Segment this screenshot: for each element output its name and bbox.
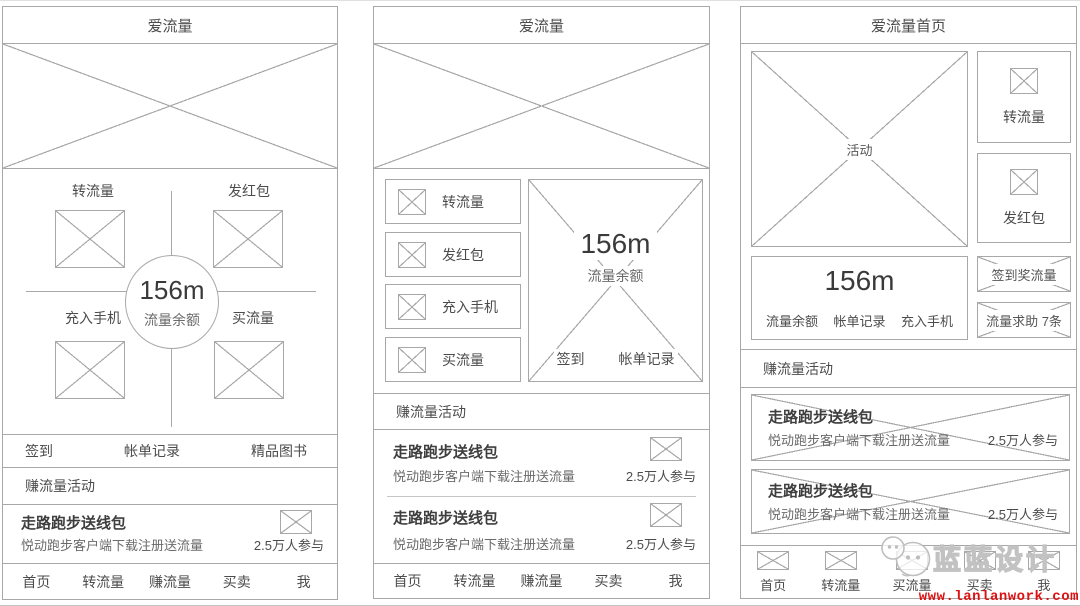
nav-item-home[interactable]: 首页 (374, 571, 441, 591)
signin-reward-button[interactable]: 签到奖流量 (977, 256, 1071, 292)
nav-label: 首页 (760, 575, 786, 594)
watermark-brand-text: 蓝蓝设计 (933, 538, 1057, 578)
screen1-page-title: 爱流量 (147, 15, 192, 36)
balance-circle: 156m 流量余额 (125, 255, 219, 349)
wireframe-screen-home-v1: 爱流量 转流量 发红包 充入手机 买流量 156m 流量余额 签到 帐单记录 精… (2, 6, 338, 600)
nav-item-trade[interactable]: 买卖 (203, 572, 270, 592)
action-label-transfer: 转流量 (33, 181, 153, 201)
menu-label: 充入手机 (442, 297, 498, 317)
screen2-menu-area: 转流量 发红包 充入手机 买流量 156m 流量余额 签到 (374, 169, 709, 393)
menu-image-placeholder-icon (398, 242, 426, 268)
screen2-bottom-nav: 首页 转流量 赚流量 买卖 我 (374, 564, 709, 598)
link-signin[interactable]: 签到 (554, 349, 588, 369)
promo-subtitle: 悦动跑步客户端下载注册送流量 (768, 504, 950, 523)
link-balance[interactable]: 流量余额 (766, 311, 818, 330)
screen2-title-bar: 爱流量 (374, 7, 709, 44)
balance-links-row: 流量余额 帐单记录 充入手机 (752, 311, 967, 330)
menu-image-placeholder-icon (398, 347, 426, 373)
nav-item-earn[interactable]: 赚流量 (137, 572, 204, 592)
balance-label: 流量余额 (584, 266, 648, 286)
menu-item-buydata[interactable]: 买流量 (385, 337, 521, 382)
promo-subtitle: 悦动跑步客户端下载注册送流量 (393, 534, 575, 553)
promo-participants: 2.5万人参与 (988, 430, 1058, 449)
promo-participants: 2.5万人参与 (254, 535, 324, 554)
wireframe-screen-home-v2: 爱流量 转流量 发红包 充入手机 买流量 156m (373, 6, 710, 599)
topup-image-placeholder-icon[interactable] (55, 341, 125, 399)
side-action-redpacket[interactable]: 发红包 (977, 153, 1071, 243)
link-billing[interactable]: 帐单记录 (833, 311, 885, 330)
promo-card[interactable]: 走路跑步送线包 悦动跑步客户端下载注册送流量 2.5万人参与 (374, 497, 709, 563)
balance-card: 156m 流量余额 帐单记录 充入手机 (751, 256, 968, 340)
wireframe-screen-home-v3: 爱流量首页 活动 转流量 发红包 156m 流量余额 帐单记录 充入手机 (740, 6, 1077, 599)
promo-image-placeholder-icon (650, 503, 682, 527)
action-label-redpacket: 发红包 (189, 181, 309, 201)
balance-readout: 156m 流量余额 (529, 228, 702, 286)
promo-subtitle: 悦动跑步客户端下载注册送流量 (393, 466, 575, 485)
promo-subtitle: 悦动跑步客户端下载注册送流量 (768, 430, 950, 449)
quick-link-signin[interactable]: 签到 (25, 441, 53, 461)
promo-subtitle: 悦动跑步客户端下载注册送流量 (21, 535, 203, 554)
menu-image-placeholder-icon (398, 189, 426, 215)
wireframe-sheet: 爱流量 转流量 发红包 充入手机 买流量 156m 流量余额 签到 帐单记录 精… (0, 0, 1080, 606)
promo-participants: 2.5万人参与 (626, 534, 696, 553)
quick-link-billing[interactable]: 帐单记录 (124, 441, 180, 461)
section-title: 赚流量活动 (763, 359, 833, 379)
screen2-page-title: 爱流量 (519, 15, 564, 36)
promo-image-placeholder-icon (280, 510, 312, 534)
nav-image-placeholder-icon (825, 551, 857, 570)
promo-title: 走路跑步送线包 (768, 406, 873, 427)
promo-card[interactable]: 走路跑步送线包 悦动跑步客户端下载注册送流量 2.5万人参与 (751, 469, 1070, 534)
promo-title: 走路跑步送线包 (393, 507, 498, 528)
screen1-section-header: 赚流量活动 (3, 468, 337, 505)
promo-image-placeholder-icon (650, 437, 682, 461)
nav-item-trade[interactable]: 买卖 (575, 571, 642, 591)
menu-label: 买流量 (442, 350, 484, 370)
data-help-button[interactable]: 流量求助 7条 (977, 302, 1071, 338)
side-action-label: 发红包 (1003, 208, 1045, 228)
promo-card[interactable]: 走路跑步送线包 悦动跑步客户端下载注册送流量 2.5万人参与 (751, 394, 1070, 461)
link-topup[interactable]: 充入手机 (901, 311, 953, 330)
nav-image-placeholder-icon (757, 551, 789, 570)
nav-item-me[interactable]: 我 (642, 571, 709, 591)
data-help-label: 流量求助 7条 (982, 310, 1066, 331)
screen3-title-bar: 爱流量首页 (741, 7, 1076, 44)
lanlan-bubbles-logo-icon (880, 535, 932, 579)
nav-label: 转流量 (821, 575, 860, 594)
balance-panel-placeholder: 156m 流量余额 签到 帐单记录 (528, 179, 703, 382)
nav-item-home[interactable]: 首页 (757, 551, 789, 594)
action-image-placeholder-icon (1010, 169, 1038, 195)
nav-item-me[interactable]: 我 (270, 572, 337, 592)
screen2-promo-list: 走路跑步送线包 悦动跑步客户端下载注册送流量 2.5万人参与 走路跑步送线包 悦… (374, 430, 709, 564)
nav-item-earn[interactable]: 赚流量 (508, 571, 575, 591)
screen1-action-grid: 转流量 发红包 充入手机 买流量 156m 流量余额 (3, 169, 337, 435)
screen3-content-area: 活动 转流量 发红包 156m 流量余额 帐单记录 充入手机 签到奖流量 (741, 44, 1076, 349)
menu-image-placeholder-icon (398, 294, 426, 320)
promo-participants: 2.5万人参与 (626, 466, 696, 485)
banner-label: 活动 (842, 139, 876, 160)
action-image-placeholder-icon (1010, 68, 1038, 94)
balance-links-row: 签到 帐单记录 (529, 349, 702, 369)
buydata-image-placeholder-icon[interactable] (214, 341, 284, 399)
promo-card[interactable]: 走路跑步送线包 悦动跑步客户端下载注册送流量 2.5万人参与 (374, 430, 709, 496)
menu-label: 发红包 (442, 245, 484, 265)
watermark-url-text: www.lanlanwork.com (919, 589, 1079, 605)
section-title: 赚流量活动 (396, 402, 466, 422)
redpacket-image-placeholder-icon[interactable] (213, 210, 283, 268)
side-action-label: 转流量 (1003, 107, 1045, 127)
screen1-quick-links-row: 签到 帐单记录 精品图书 (3, 435, 337, 468)
transfer-image-placeholder-icon[interactable] (55, 210, 125, 268)
screen1-promo-card[interactable]: 走路跑步送线包 悦动跑步客户端下载注册送流量 2.5万人参与 (3, 505, 337, 564)
nav-item-transfer[interactable]: 转流量 (821, 551, 860, 594)
signin-reward-label: 签到奖流量 (987, 264, 1060, 285)
section-title: 赚流量活动 (25, 476, 95, 496)
nav-item-home[interactable]: 首页 (3, 572, 70, 592)
nav-item-transfer[interactable]: 转流量 (70, 572, 137, 592)
menu-item-redpacket[interactable]: 发红包 (385, 232, 521, 277)
promo-title: 走路跑步送线包 (393, 441, 498, 462)
menu-item-topup[interactable]: 充入手机 (385, 284, 521, 329)
screen3-promo-list: 走路跑步送线包 悦动跑步客户端下载注册送流量 2.5万人参与 走路跑步送线包 悦… (741, 388, 1076, 545)
screen2-banner-placeholder[interactable] (374, 44, 709, 169)
balance-value: 156m (574, 228, 656, 260)
nav-item-transfer[interactable]: 转流量 (441, 571, 508, 591)
screen1-bottom-nav: 首页 转流量 赚流量 买卖 我 (3, 564, 337, 599)
balance-label: 流量余额 (144, 310, 200, 330)
screen2-section-header: 赚流量活动 (374, 393, 709, 430)
promo-title: 走路跑步送线包 (768, 480, 873, 501)
screen3-page-title: 爱流量首页 (871, 15, 946, 36)
promo-participants: 2.5万人参与 (988, 504, 1058, 523)
menu-item-transfer[interactable]: 转流量 (385, 179, 521, 224)
screen3-section-header: 赚流量活动 (741, 349, 1076, 388)
screen1-banner-placeholder[interactable] (3, 44, 337, 169)
link-billing[interactable]: 帐单记录 (616, 349, 678, 369)
activity-banner-placeholder[interactable]: 活动 (751, 51, 968, 247)
screen1-title-bar: 爱流量 (3, 7, 337, 44)
promo-title: 走路跑步送线包 (21, 512, 126, 533)
balance-value: 156m (752, 265, 967, 297)
menu-label: 转流量 (442, 192, 484, 212)
balance-value: 156m (139, 275, 204, 306)
quick-link-books[interactable]: 精品图书 (251, 441, 307, 461)
side-action-transfer[interactable]: 转流量 (977, 51, 1071, 143)
